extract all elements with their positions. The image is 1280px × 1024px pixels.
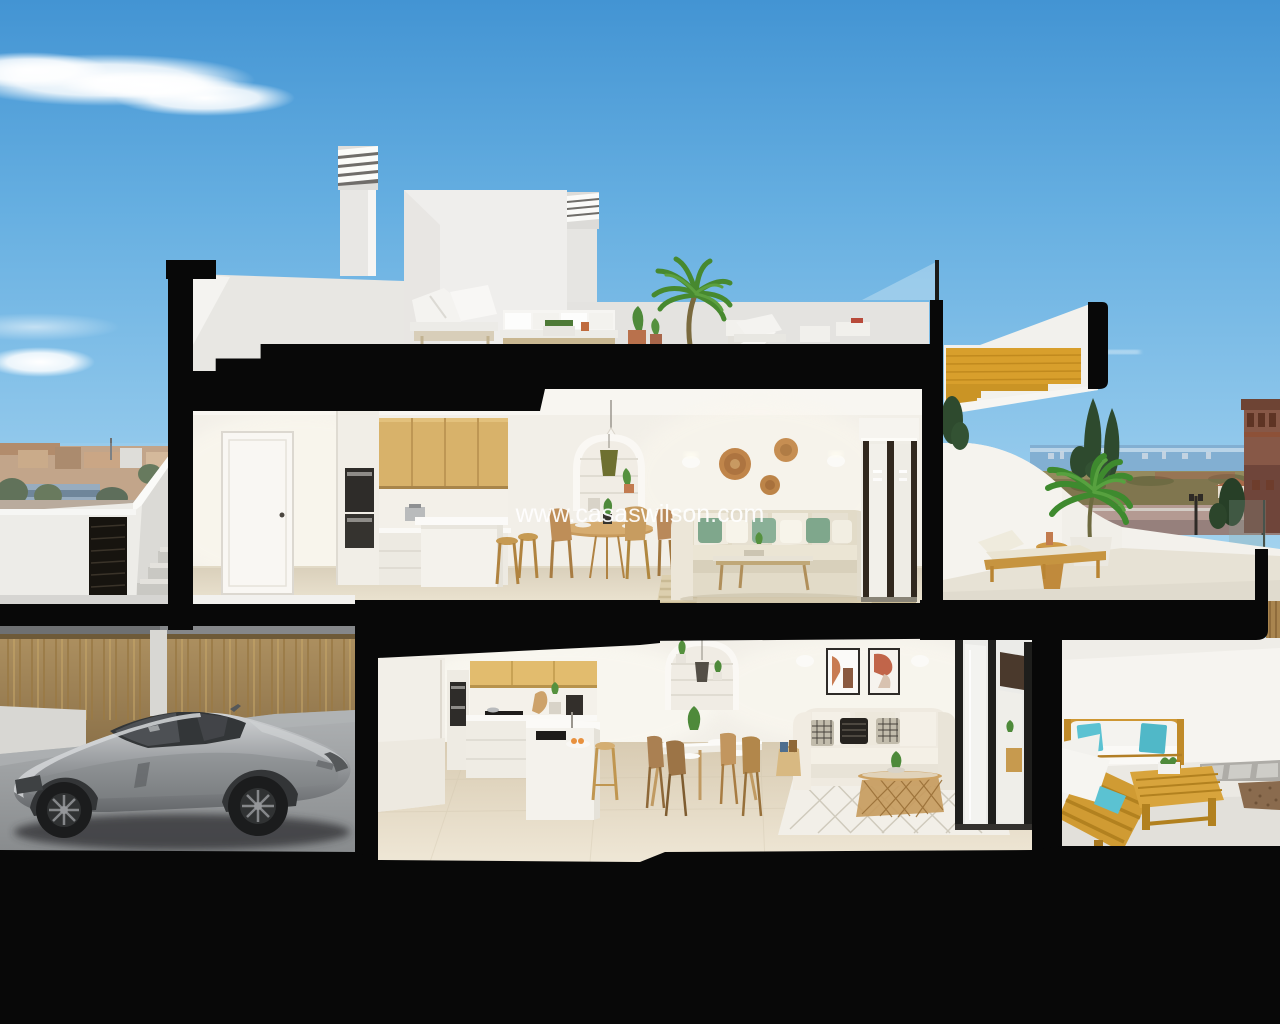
svg-text:www.casaswilson.com: www.casaswilson.com (515, 500, 765, 528)
